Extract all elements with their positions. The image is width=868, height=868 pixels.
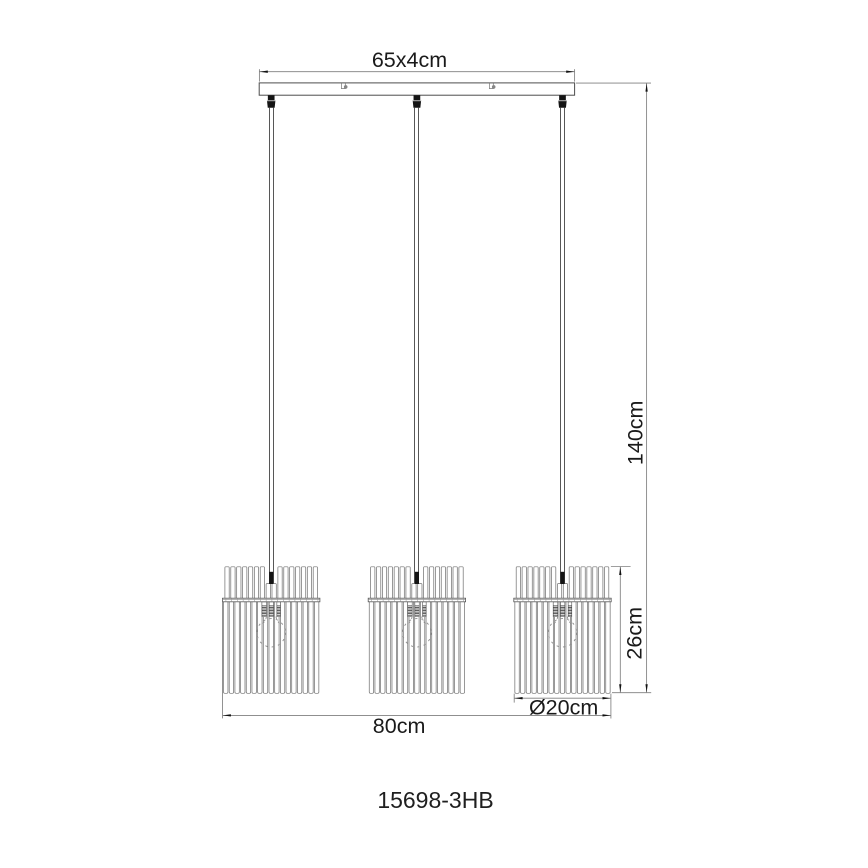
svg-text:80cm: 80cm <box>373 714 426 738</box>
svg-text:15698-3HB: 15698-3HB <box>377 787 493 813</box>
svg-text:26cm: 26cm <box>623 607 647 660</box>
svg-text:140cm: 140cm <box>623 401 647 466</box>
svg-text:65x4cm: 65x4cm <box>372 48 447 72</box>
